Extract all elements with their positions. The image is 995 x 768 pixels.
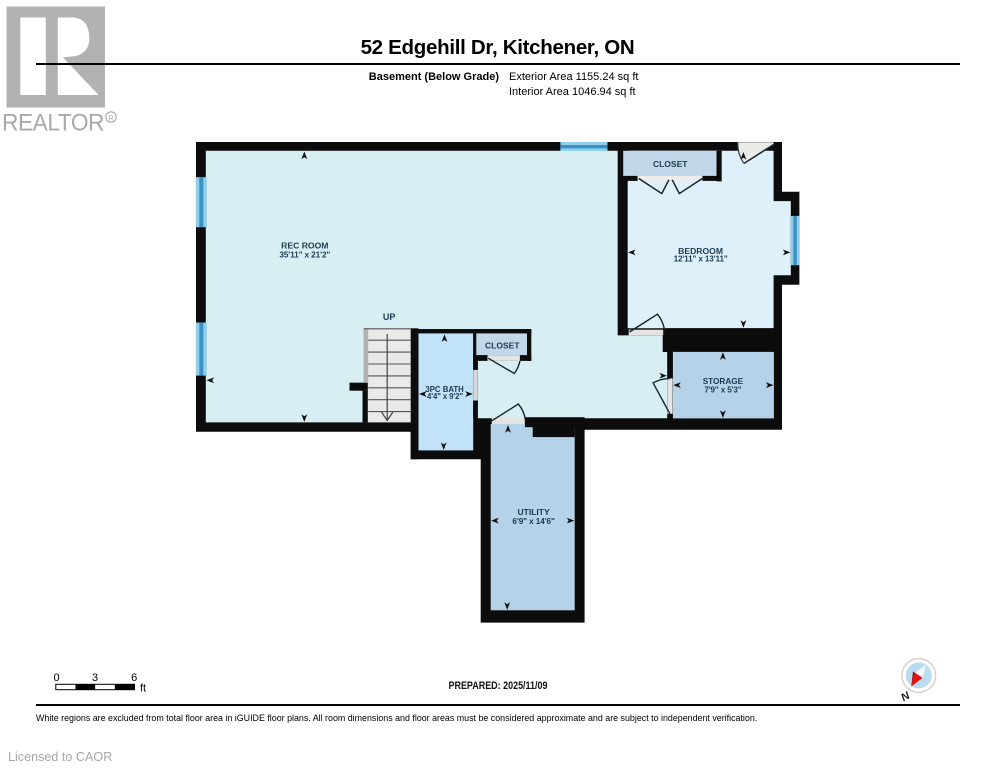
svg-text:6: 6: [131, 672, 137, 684]
svg-text:12'11" x 13'11": 12'11" x 13'11": [674, 255, 728, 264]
svg-text:7'9" x 5'3": 7'9" x 5'3": [704, 386, 741, 395]
svg-text:CLOSET: CLOSET: [653, 159, 688, 169]
svg-text:N: N: [899, 689, 913, 704]
svg-text:CLOSET: CLOSET: [485, 340, 520, 350]
svg-text:ft: ft: [140, 683, 146, 695]
svg-text:4'4" x 9'2": 4'4" x 9'2": [427, 392, 463, 401]
svg-text:6'9" x 14'6": 6'9" x 14'6": [512, 517, 555, 526]
svg-text:UTILITY: UTILITY: [518, 507, 550, 517]
svg-text:35'11" x 21'2": 35'11" x 21'2": [279, 250, 330, 259]
svg-text:REC ROOM: REC ROOM: [281, 240, 328, 250]
svg-text:3: 3: [92, 672, 98, 684]
svg-text:PREPARED: 2025/11/09: PREPARED: 2025/11/09: [449, 680, 548, 692]
svg-text:STORAGE: STORAGE: [703, 377, 744, 386]
svg-text:0: 0: [53, 672, 59, 684]
svg-text:UP: UP: [383, 312, 396, 322]
